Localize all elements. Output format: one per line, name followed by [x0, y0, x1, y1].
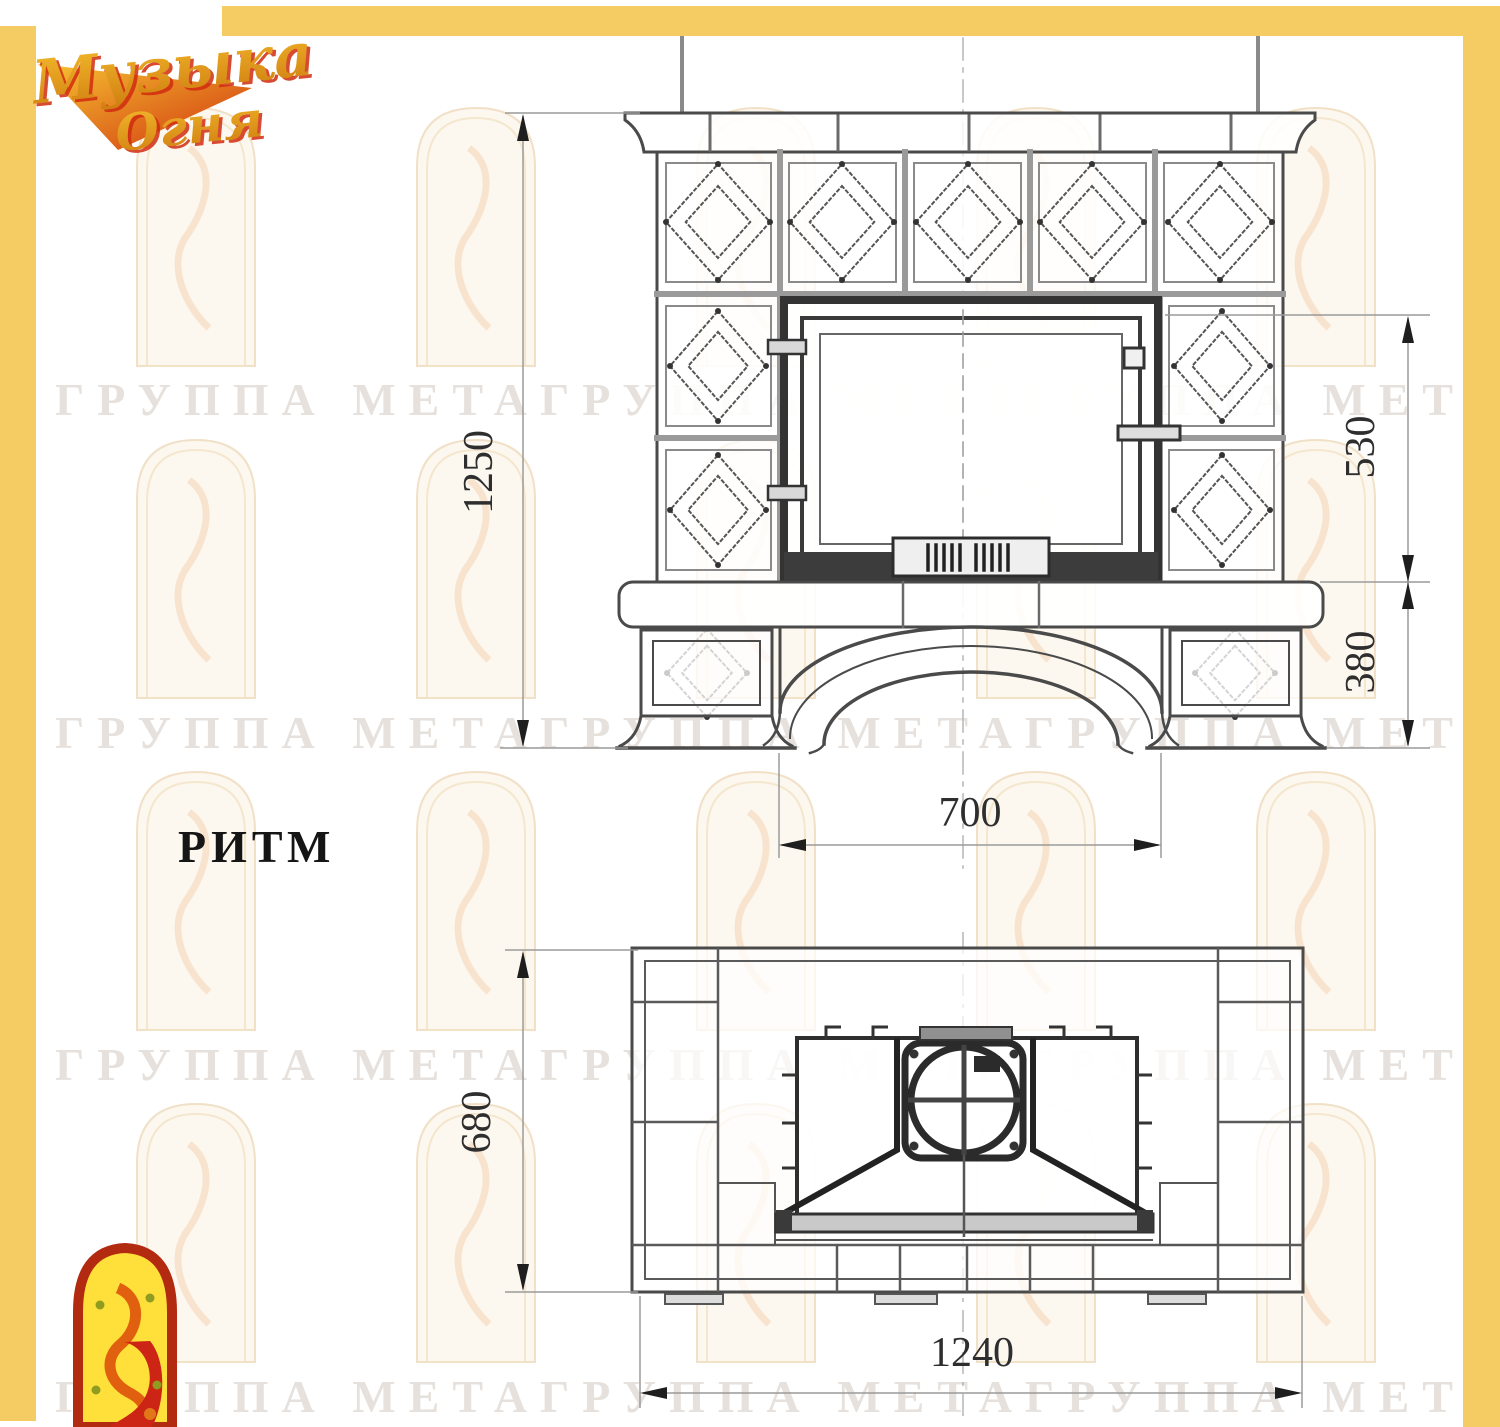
- model-name-label: РИТМ: [178, 821, 335, 872]
- diamond-dot: [715, 418, 721, 424]
- tile-cell: [1039, 163, 1146, 282]
- diamond-dot: [763, 507, 769, 513]
- diamond-dot: [1219, 562, 1225, 568]
- diamond-dot: [667, 507, 673, 513]
- left-leg-panel: [641, 630, 772, 716]
- diamond-dot: [1219, 452, 1225, 458]
- diamond-dot: [839, 161, 845, 167]
- drawing-sheet: ГРУППА МЕТАГРУППА МЕТАГРУППА МЕТА ГРУППА…: [0, 0, 1500, 1427]
- dim-label-1240: 1240: [930, 1330, 1014, 1376]
- insert-top-bar: [920, 1027, 1012, 1040]
- dim-opening-width: 700: [779, 753, 1161, 858]
- diamond-dot: [913, 219, 919, 225]
- diamond-dot: [839, 277, 845, 283]
- watermark-arch: [417, 772, 535, 1030]
- tile-cell: [1169, 450, 1274, 570]
- diamond-dot: [1141, 219, 1147, 225]
- diamond-dot: [1267, 363, 1273, 369]
- door-handle: [1118, 426, 1180, 440]
- plate-end-right: [1137, 1210, 1153, 1232]
- diamond-dot: [715, 562, 721, 568]
- diamond-dot: [1171, 507, 1177, 513]
- tile-cell: [1169, 306, 1274, 426]
- diamond-dot: [715, 277, 721, 283]
- diamond-dot: [965, 161, 971, 167]
- diamond-dot: [1219, 308, 1225, 314]
- diamond-dot: [1017, 219, 1023, 225]
- diamond-dot: [767, 219, 773, 225]
- diamond-dot: [1217, 161, 1223, 167]
- diamond-dot: [1267, 507, 1273, 513]
- flue-damper: [974, 1056, 1000, 1072]
- diamond-dot: [1089, 277, 1095, 283]
- door-latch: [1124, 348, 1144, 368]
- vent-grille: [893, 538, 1049, 576]
- door-glass: [820, 334, 1122, 544]
- diamond-dot: [763, 363, 769, 369]
- diamond-dot: [663, 219, 669, 225]
- dim-label-1250: 1250: [456, 430, 502, 514]
- diamond-dot: [715, 452, 721, 458]
- arch-outline: [417, 108, 535, 366]
- frame-left-bar: [0, 26, 36, 1421]
- fireplace-drawing-svg: ГРУППА МЕТАГРУППА МЕТАГРУППА МЕТА ГРУППА…: [0, 0, 1500, 1427]
- diamond-dot: [667, 363, 673, 369]
- watermark-arch: [137, 772, 255, 1030]
- diamond-dot: [787, 219, 793, 225]
- dim-label-680: 680: [454, 1091, 500, 1154]
- diamond-dot: [965, 277, 971, 283]
- diamond-dot: [1165, 219, 1171, 225]
- frame-top-bar: [222, 6, 1500, 36]
- tile-cell: [789, 163, 896, 282]
- dim-label-530: 530: [1338, 416, 1384, 479]
- diamond-dot: [1217, 277, 1223, 283]
- watermark-arch: [417, 108, 535, 366]
- diamond-dot: [1089, 161, 1095, 167]
- tile-cell: [666, 306, 771, 426]
- door-hinge-top: [768, 340, 806, 354]
- tile-cell: [914, 163, 1021, 282]
- door-hinge-bottom: [768, 486, 806, 500]
- diamond-dot: [1219, 418, 1225, 424]
- frame-right-bar: [1463, 6, 1500, 1427]
- right-leg-panel: [1170, 630, 1301, 716]
- arch-outline: [137, 440, 255, 698]
- arch-outline: [417, 772, 535, 1030]
- diamond-dot: [1037, 219, 1043, 225]
- arch-outer: [780, 627, 1162, 712]
- firebox-door: [768, 300, 1180, 580]
- watermark-arch: [137, 440, 255, 698]
- tile-cell: [666, 450, 771, 570]
- diamond-dot: [715, 308, 721, 314]
- plan-insert: [776, 1027, 1153, 1240]
- flame-dot-orange: [144, 1408, 156, 1420]
- flame-arch-icon: [78, 1248, 172, 1427]
- tile-cell: [1164, 163, 1274, 282]
- dim-label-380: 380: [1338, 631, 1384, 694]
- arch-outline: [137, 772, 255, 1030]
- mantel-shelf: [619, 582, 1323, 627]
- diamond-dot: [1171, 363, 1177, 369]
- diamond-dot: [715, 161, 721, 167]
- logo: Музыка Музыка Огня Огня: [27, 19, 319, 166]
- diamond-dot: [1269, 219, 1275, 225]
- tile-cell: [666, 163, 771, 282]
- dim-label-700: 700: [939, 790, 1002, 836]
- diamond-dot: [891, 219, 897, 225]
- insert-body: [797, 1038, 1137, 1223]
- plate-end-left: [776, 1210, 792, 1232]
